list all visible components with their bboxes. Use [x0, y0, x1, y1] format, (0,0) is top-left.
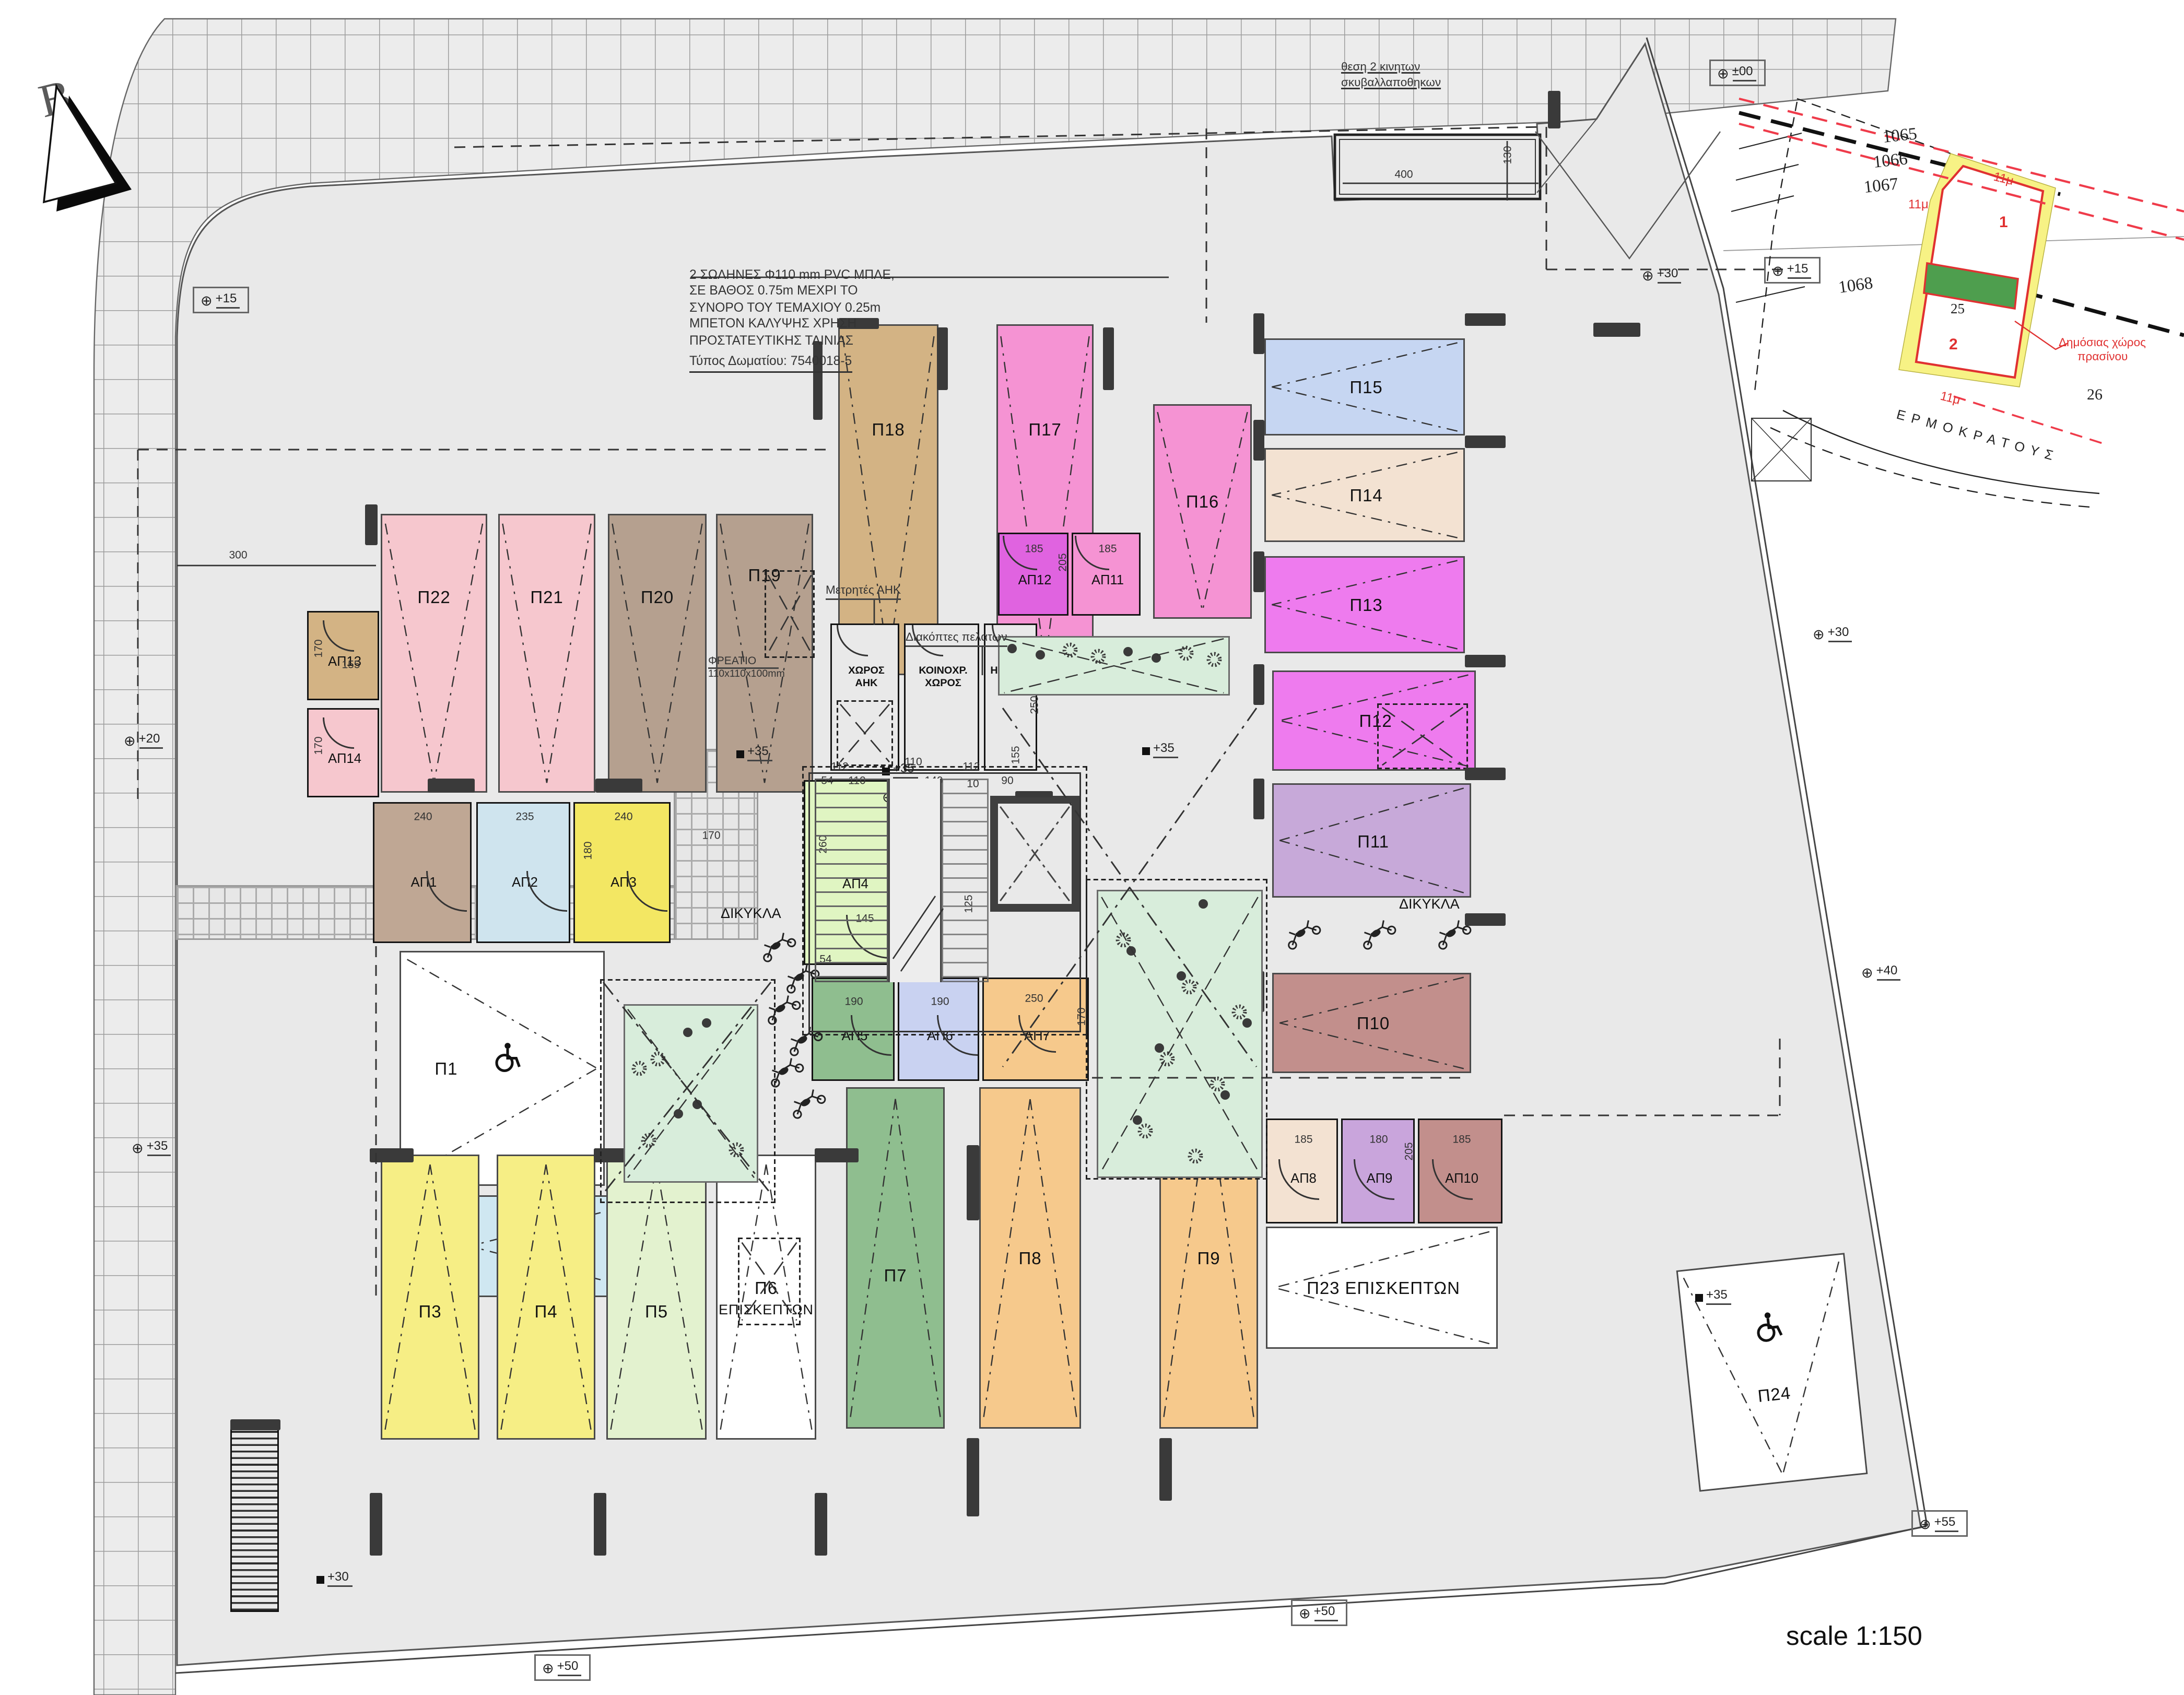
parking-stall-P10: Π10	[1272, 973, 1471, 1073]
level-square-icon	[316, 1576, 324, 1584]
stair-flight	[942, 779, 989, 982]
svg-text:ΕΡΜΟΚΡΑΤΟΥΣ: ΕΡΜΟΚΡΑΤΟΥΣ	[1895, 407, 2061, 465]
room-dim: 185	[1452, 1135, 1471, 1146]
level-marker: ⊕+15	[193, 287, 249, 313]
column	[370, 1148, 414, 1162]
level-value: +30	[1828, 625, 1852, 642]
stall-label: Π11	[1357, 833, 1389, 852]
note-line: ΜΠΕΤΟΝ ΚΑΛΥΨΗΣ ΧΡΗΣΗ	[689, 317, 895, 333]
floor-plan: Π1Π2Π3Π4Π5Π6ΕΠΙΣΚΕΠΤΩΝΠ7Π8Π9Π10Π11Π12Π13…	[0, 0, 2184, 1695]
level-value: +30	[1657, 266, 1682, 284]
parking-stall-P7: Π7	[846, 1087, 945, 1429]
room-label: ΑΠ12	[1018, 572, 1052, 587]
parking-stall-P21: Π21	[498, 514, 595, 793]
stall-label: Π13	[1349, 597, 1382, 616]
level-marker: +30	[316, 1570, 352, 1587]
meters-label: Μετρητές ΑΗΚ	[826, 583, 901, 600]
column	[1465, 655, 1506, 667]
room-label: ΑΠ11	[1091, 572, 1124, 587]
room-dim: 180	[1369, 1135, 1388, 1146]
stall-label: Π8	[1018, 1250, 1041, 1269]
moto-label-right: ΔΙΚΥΚΛΑ	[1399, 896, 1460, 912]
stall-label: Π16	[1186, 493, 1219, 512]
shaft-note: ΦΡΕΑΤΙΟ 110x110x100mm	[708, 656, 785, 680]
dimension: 250	[1030, 696, 1041, 714]
parking-stall-P3: Π3	[381, 1155, 479, 1440]
room-dim: 170	[314, 736, 325, 755]
room-dim: 155	[342, 661, 360, 672]
stall-label: Π20	[641, 590, 674, 608]
stall-label: Π9	[1197, 1250, 1220, 1269]
dashed-box	[765, 570, 815, 658]
level-marker: ⊕+30	[1642, 266, 1681, 284]
note-line: σκυβαλλαποθηκων	[1341, 75, 1441, 90]
room-type-note: Τύπος Δωματίου: 7540018-5	[689, 354, 852, 373]
level-marker: ⊕+40	[1861, 963, 1900, 981]
level-marker: +35	[736, 744, 772, 761]
parking-stall-P22: Π22	[381, 514, 487, 793]
stall-label: Π5	[645, 1303, 668, 1322]
room-dim: 180	[584, 841, 595, 860]
parking-stall-P17: Π17	[996, 324, 1094, 675]
column	[1548, 91, 1560, 128]
level-value: +35	[147, 1139, 171, 1156]
planter	[998, 636, 1230, 696]
svg-text:25: 25	[1951, 301, 1965, 316]
stall-label: Π22	[417, 590, 450, 608]
motorcycle-icon	[784, 1083, 830, 1123]
north-arrow: B	[31, 70, 157, 243]
level-value: +30	[327, 1570, 352, 1587]
level-marker: +35	[1695, 1288, 1731, 1305]
level-marker: +35	[1142, 741, 1178, 758]
service-room-label: ΧΩΡΟΣΑΗΚ	[848, 666, 885, 690]
inset-map: 1065 1066 1067 1068 1 2 25 26 11μ 11μ 11…	[1708, 23, 2184, 525]
dimension: 130	[1504, 146, 1514, 164]
stair-landing	[888, 779, 942, 982]
level-marker: ⊕+35	[132, 1139, 171, 1156]
parking-stall-P12: Π12	[1272, 670, 1476, 771]
wheelchair-icon	[1753, 1310, 1784, 1344]
stall-label: Π14	[1349, 487, 1382, 506]
dashed-box	[738, 1238, 801, 1325]
dashed-box	[837, 700, 893, 766]
stair-flight	[815, 779, 888, 982]
note-line: ΣΕ ΒΑΘΟΣ 0.75m ΜΕΧΡΙ ΤΟ	[689, 284, 895, 300]
column	[1253, 313, 1264, 354]
stall-label: Π1	[435, 1061, 457, 1079]
service-room-label: ΚΟΙΝΟΧΡ.ΧΩΡΟΣ	[919, 666, 967, 690]
level-marker: ⊕+20	[124, 732, 163, 749]
column	[595, 779, 642, 793]
level-value: +40	[1876, 963, 1901, 981]
column	[1159, 1438, 1172, 1501]
level-value: +35	[1706, 1288, 1731, 1305]
column	[365, 504, 378, 545]
column	[815, 1493, 827, 1556]
level-square-icon	[1695, 1294, 1703, 1302]
room-dim: 185	[1294, 1135, 1312, 1146]
garbage-note: θεση 2 κινητων σκυβαλλαποθηκων	[1341, 60, 1441, 89]
column	[1465, 913, 1506, 926]
level-circle-icon: ⊕	[124, 735, 136, 749]
svg-text:1066: 1066	[1872, 149, 1908, 172]
stall-label: Π3	[418, 1303, 441, 1322]
column	[1253, 664, 1264, 705]
level-value: +35	[747, 744, 772, 761]
level-circle-icon: ⊕	[1919, 1518, 1931, 1532]
parking-stall-P14: Π14	[1264, 448, 1465, 542]
room-dim: 205	[1405, 1142, 1416, 1160]
column	[1593, 323, 1640, 337]
parking-stall-P20: Π20	[608, 514, 707, 793]
parking-stall-P11: Π11	[1272, 783, 1471, 898]
level-circle-icon: ⊕	[1813, 628, 1825, 642]
parking-stall-P4: Π4	[497, 1155, 595, 1440]
level-value: +15	[216, 291, 240, 309]
level-value: +50	[557, 1659, 582, 1676]
column	[1465, 313, 1506, 326]
pipe-note: 2 ΣΩΛΗΝΕΣ Φ110 mm PVC ΜΠΛΕ, ΣΕ ΒΑΘΟΣ 0.7…	[689, 268, 895, 373]
stall-label: Π24	[1757, 1385, 1792, 1407]
level-marker: ⊕+55	[1911, 1510, 1968, 1537]
stall-label: Π18	[872, 422, 905, 441]
room-dim: 205	[1059, 553, 1070, 571]
column	[1253, 551, 1264, 592]
note-line: ΠΡΟΣΤΑΤΕΥΤΙΚΗΣ ΤΑΙΝΙΑΣ	[689, 333, 895, 349]
motorcycle-icon	[1279, 914, 1325, 954]
parking-stall-P18: Π18	[838, 324, 938, 675]
level-value: +20	[139, 732, 163, 749]
level-circle-icon: ⊕	[1299, 1607, 1311, 1621]
dashed-box	[1377, 703, 1468, 769]
room-dim: 240	[614, 813, 632, 823]
level-marker: ⊕+30	[1813, 625, 1852, 642]
parking-stall-P23: Π23 ΕΠΙΣΚΕΠΤΩΝ	[1266, 1227, 1498, 1349]
svg-text:1065: 1065	[1882, 124, 1918, 147]
wheelchair-icon	[494, 1042, 522, 1073]
room-dim: 240	[414, 813, 432, 823]
level-circle-icon: ⊕	[542, 1662, 554, 1676]
column	[1103, 327, 1114, 390]
column	[1253, 420, 1264, 461]
column	[230, 1419, 280, 1430]
note-line: 2 ΣΩΛΗΝΕΣ Φ110 mm PVC ΜΠΛΕ,	[689, 268, 895, 284]
parking-stall-P15: Π15	[1264, 338, 1465, 435]
room-dim: 235	[515, 813, 534, 823]
svg-text:11μ: 11μ	[1939, 389, 1962, 408]
column	[594, 1493, 606, 1556]
stall-label: Π17	[1028, 422, 1061, 441]
room-label: ΑΠ14	[328, 751, 361, 767]
dimension: 300	[229, 551, 247, 562]
dimension: 155	[1012, 746, 1023, 764]
column	[428, 779, 475, 793]
column	[937, 327, 948, 390]
level-circle-icon: ⊕	[132, 1142, 144, 1156]
stall-label: Π21	[530, 590, 563, 608]
svg-text:1: 1	[1999, 214, 2008, 231]
svg-text:Δημόσιας χώρος: Δημόσιας χώρος	[2059, 336, 2146, 349]
parking-stall-P16: Π16	[1153, 404, 1252, 619]
level-square-icon	[1142, 747, 1150, 755]
svg-text:2: 2	[1949, 336, 1958, 353]
room-dim: 170	[314, 639, 325, 657]
stall-label: Π7	[884, 1267, 907, 1286]
column	[967, 1145, 979, 1220]
moto-label-left: ΔΙΚΥΚΛΑ	[721, 905, 781, 921]
level-value: +35	[1153, 741, 1178, 758]
level-value: +50	[1314, 1604, 1338, 1621]
dimension: 170	[702, 831, 720, 842]
level-circle-icon: ⊕	[1861, 967, 1873, 981]
note-line: ΣΥΝΟΡΟ ΤΟΥ ΤΕΜΑΧΙΟΥ 0.25m	[689, 300, 895, 316]
level-square-icon	[736, 750, 744, 758]
svg-text:πρασίνου: πρασίνου	[2077, 350, 2128, 363]
note-line: θεση 2 κινητων	[1341, 60, 1441, 75]
stall-label: Π15	[1349, 379, 1382, 398]
column	[815, 1148, 859, 1162]
scale-label: scale 1:150	[1786, 1621, 1922, 1653]
level-circle-icon: ⊕	[201, 295, 213, 309]
column	[1465, 435, 1506, 448]
svg-text:1068: 1068	[1837, 274, 1874, 297]
dimension: 400	[1394, 170, 1413, 181]
motorcycle-icon	[754, 926, 800, 967]
svg-text:26: 26	[2087, 386, 2103, 403]
planter-dashed-outline	[1086, 879, 1267, 1180]
level-circle-icon: ⊕	[1642, 269, 1654, 284]
parking-stall-P1: Π1	[400, 951, 605, 1186]
stall-label: Π23 ΕΠΙΣΚΕΠΤΩΝ	[1307, 1280, 1460, 1299]
parking-stall-P8: Π8	[979, 1087, 1081, 1429]
switches-label: Διακόπτες πελατων	[906, 630, 1007, 647]
column	[370, 1493, 382, 1556]
stall-label: Π4	[534, 1303, 557, 1322]
column	[1465, 768, 1506, 780]
planter-dashed-outline	[600, 979, 776, 1203]
level-marker: ⊕+50	[534, 1654, 591, 1681]
svg-text:1067: 1067	[1863, 174, 1899, 197]
level-marker: ⊕+50	[1291, 1599, 1347, 1626]
motorcycle-icon	[1354, 914, 1400, 954]
column	[967, 1438, 979, 1516]
column	[1253, 779, 1264, 819]
level-value: +55	[1934, 1515, 1959, 1532]
svg-text:11μ: 11μ	[1908, 197, 1929, 211]
stall-label: Π10	[1357, 1015, 1390, 1034]
elevator-shaft	[990, 796, 1079, 912]
parking-stall-P13: Π13	[1264, 556, 1465, 653]
